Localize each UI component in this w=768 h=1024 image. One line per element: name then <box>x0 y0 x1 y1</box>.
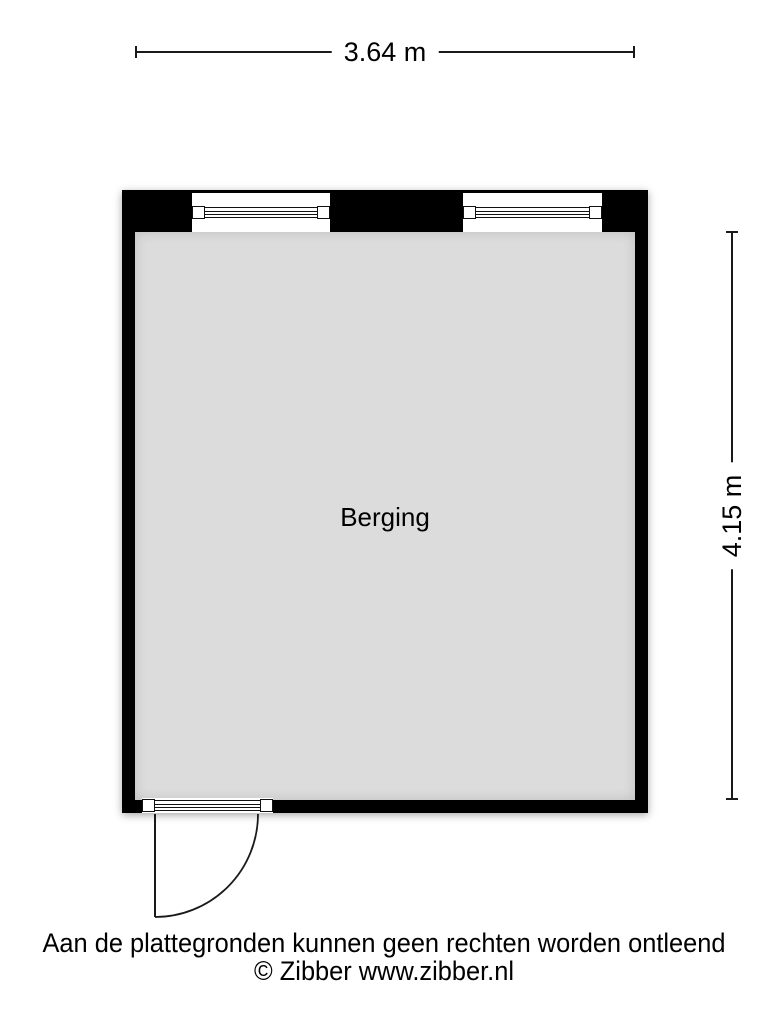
window-icon <box>463 193 602 232</box>
window-icon <box>192 193 330 232</box>
wall-right <box>635 190 648 813</box>
window-frame-cap-icon <box>317 206 330 219</box>
window-frame-cap-icon <box>463 206 476 219</box>
window-frame-cap-icon <box>192 206 205 219</box>
height-dimension-label: 4.15 m <box>717 463 747 570</box>
disclaimer-text: Aan de plattegronden kunnen geen rechten… <box>23 929 745 957</box>
room-label: Berging <box>340 502 430 532</box>
wall-left <box>122 190 135 813</box>
footer: Aan de plattegronden kunnen geen rechten… <box>0 929 768 985</box>
floorplan: Berging <box>122 190 648 813</box>
width-dimension-label: 3.64 m <box>332 37 439 67</box>
window-glazing-icon <box>204 207 318 218</box>
window-frame-cap-icon <box>589 206 602 219</box>
door-swing-icon <box>140 805 280 930</box>
window-glazing-icon <box>475 207 590 218</box>
copyright-text: © Zibber www.zibber.nl <box>23 957 745 985</box>
floorplan-canvas: 3.64 m Berging 4.15 <box>0 0 768 1024</box>
